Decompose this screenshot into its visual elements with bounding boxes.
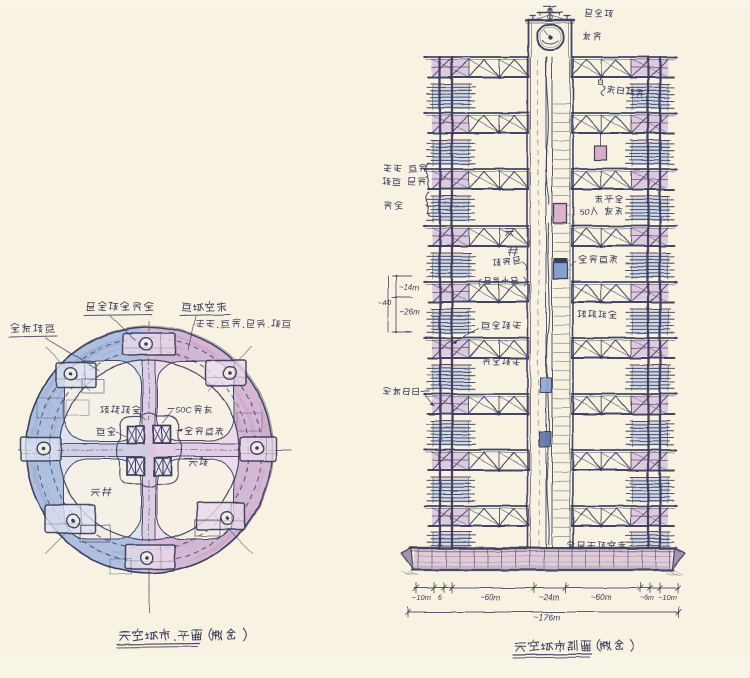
svg-text:~60m: ~60m: [591, 593, 612, 602]
svg-text:~14m: ~14m: [399, 283, 420, 292]
svg-text:~26m: ~26m: [399, 308, 420, 317]
svg-text:50: 50: [579, 207, 589, 217]
svg-text:~176m: ~176m: [534, 612, 560, 622]
svg-text:~40: ~40: [378, 298, 392, 307]
svg-text:50C: 50C: [176, 405, 192, 415]
svg-text:~60m: ~60m: [480, 593, 501, 602]
svg-text:~6m: ~6m: [640, 595, 654, 602]
svg-text:~10m: ~10m: [412, 593, 431, 602]
svg-text:~10m: ~10m: [658, 593, 677, 602]
svg-text:6: 6: [438, 595, 442, 602]
svg-text:~24m: ~24m: [539, 593, 560, 602]
